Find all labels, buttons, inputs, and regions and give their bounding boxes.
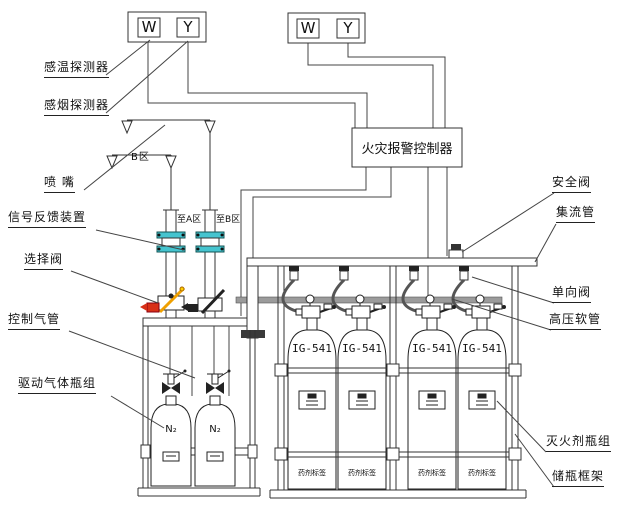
check-valves-and-hoses bbox=[283, 266, 506, 318]
label-check-valve: 单向阀 bbox=[552, 286, 591, 303]
system-diagram: W Y W Y 火灾报警控制器 感温探测器 感烟探测器 喷 嘴 信号反馈装置 选… bbox=[0, 0, 641, 508]
selector-valve-b bbox=[181, 290, 224, 318]
agent-tag-label: 药剂标签 bbox=[408, 468, 456, 478]
label-to-zone-b: 至B区 bbox=[216, 215, 240, 225]
nozzle-icon bbox=[107, 156, 117, 168]
agent-tag-label: 药剂标签 bbox=[338, 468, 386, 478]
fire-alarm-controller-label: 火灾报警控制器 bbox=[352, 128, 462, 167]
label-control-pipe: 控制气管 bbox=[8, 313, 60, 330]
hp-hose bbox=[403, 280, 416, 311]
agent-cylinder-label: IG-541 bbox=[288, 342, 336, 355]
label-cylinder-frame: 储瓶框架 bbox=[552, 470, 604, 487]
check-valve bbox=[459, 266, 469, 280]
label-nozzle: 喷 嘴 bbox=[44, 176, 75, 193]
label-driving-gas-group: 驱动气体瓶组 bbox=[18, 377, 96, 394]
label-safety-valve: 安全阀 bbox=[552, 176, 591, 193]
agent-cylinder-label: IG-541 bbox=[458, 342, 506, 355]
n2-label: N₂ bbox=[195, 424, 235, 435]
check-valve bbox=[289, 266, 299, 280]
agent-cylinder-label: IG-541 bbox=[408, 342, 456, 355]
temp-detector-symbol: W bbox=[297, 18, 319, 38]
check-valve bbox=[339, 266, 349, 280]
nozzle-branches bbox=[107, 120, 215, 210]
collecting-pipe bbox=[247, 258, 537, 266]
agent-tag-label: 药剂标签 bbox=[288, 468, 336, 478]
nozzle-icon bbox=[166, 156, 176, 168]
label-collecting-pipe: 集流管 bbox=[556, 206, 595, 223]
label-signal-feedback: 信号反馈装置 bbox=[8, 211, 86, 228]
riser-pipe bbox=[247, 258, 258, 338]
label-to-zone-a: 至A区 bbox=[177, 215, 201, 225]
agent-tag-label: 药剂标签 bbox=[458, 468, 506, 478]
nozzle-icon bbox=[205, 121, 215, 133]
nozzle-icon bbox=[122, 121, 132, 133]
weighing-plate bbox=[469, 391, 495, 409]
signal-feedback-device bbox=[196, 232, 224, 252]
signal-feedback-devices bbox=[157, 232, 224, 252]
hp-hose bbox=[283, 280, 296, 311]
label-smoke-detector: 感烟探测器 bbox=[44, 99, 109, 116]
n2-label: N₂ bbox=[151, 424, 191, 435]
label-zone-b: B区 bbox=[131, 152, 150, 164]
check-valve bbox=[409, 266, 419, 280]
weighing-plate bbox=[349, 391, 375, 409]
label-selector-valve: 选择阀 bbox=[24, 253, 63, 270]
pipe-flange bbox=[241, 330, 265, 338]
left-manifold-pipe bbox=[143, 318, 247, 326]
n2-cylinder bbox=[195, 404, 235, 486]
label-agent-cylinder-group: 灭火剂瓶组 bbox=[546, 435, 611, 452]
label-hp-hose: 高压软管 bbox=[549, 313, 601, 330]
smoke-detector-symbol: Y bbox=[177, 17, 199, 37]
weighing-plate bbox=[299, 391, 325, 409]
selector-valve-a bbox=[140, 287, 184, 318]
temp-detector-symbol: W bbox=[138, 17, 160, 37]
agent-cylinder-label: IG-541 bbox=[338, 342, 386, 355]
safety-valve bbox=[449, 244, 463, 258]
smoke-detector-symbol: Y bbox=[337, 18, 359, 38]
n2-cylinder bbox=[151, 404, 191, 486]
weighing-plate bbox=[419, 391, 445, 409]
label-temp-detector: 感温探测器 bbox=[44, 61, 109, 78]
